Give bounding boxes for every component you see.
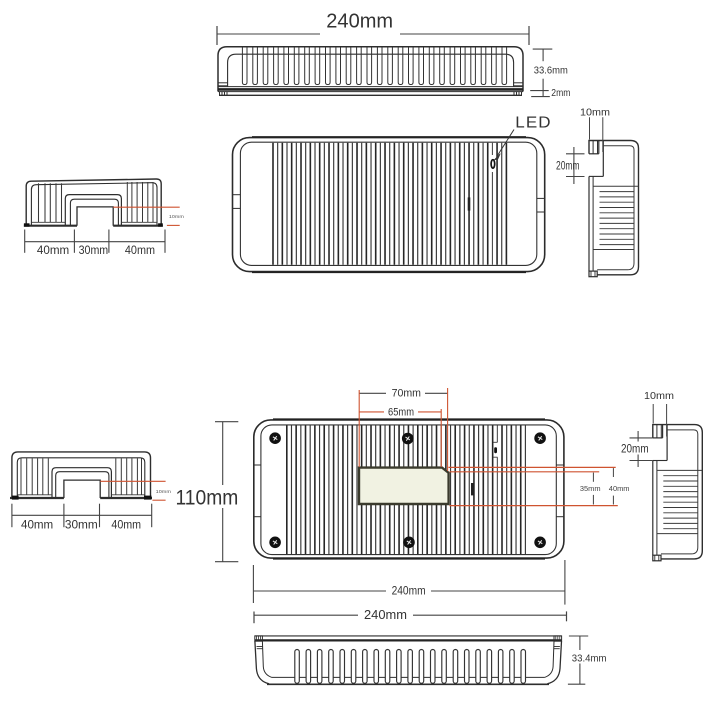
svg-text:65mm: 65mm bbox=[388, 406, 414, 418]
svg-text:240mm: 240mm bbox=[326, 11, 393, 33]
svg-text:10mm: 10mm bbox=[580, 106, 610, 118]
svg-text:240mm: 240mm bbox=[392, 584, 426, 598]
svg-text:2mm: 2mm bbox=[551, 88, 570, 99]
svg-text:30mm: 30mm bbox=[65, 517, 98, 531]
svg-text:40mm: 40mm bbox=[609, 486, 630, 493]
svg-text:40mm: 40mm bbox=[125, 243, 155, 257]
svg-text:40mm: 40mm bbox=[111, 517, 141, 531]
svg-text:30mm: 30mm bbox=[79, 243, 109, 257]
svg-text:LED: LED bbox=[515, 115, 551, 132]
svg-text:70mm: 70mm bbox=[392, 387, 421, 399]
svg-text:40mm: 40mm bbox=[21, 517, 53, 531]
svg-text:10mm: 10mm bbox=[169, 214, 184, 220]
svg-text:10mm: 10mm bbox=[156, 489, 171, 495]
svg-text:10mm: 10mm bbox=[644, 390, 674, 402]
svg-text:20mm: 20mm bbox=[556, 160, 580, 172]
svg-text:40mm: 40mm bbox=[37, 243, 69, 257]
svg-text:33.4mm: 33.4mm bbox=[572, 652, 607, 664]
svg-text:240mm: 240mm bbox=[364, 608, 407, 622]
svg-text:33.6mm: 33.6mm bbox=[534, 65, 568, 76]
svg-text:20mm: 20mm bbox=[621, 443, 649, 455]
svg-text:110mm: 110mm bbox=[176, 486, 239, 509]
svg-text:35mm: 35mm bbox=[580, 486, 601, 493]
